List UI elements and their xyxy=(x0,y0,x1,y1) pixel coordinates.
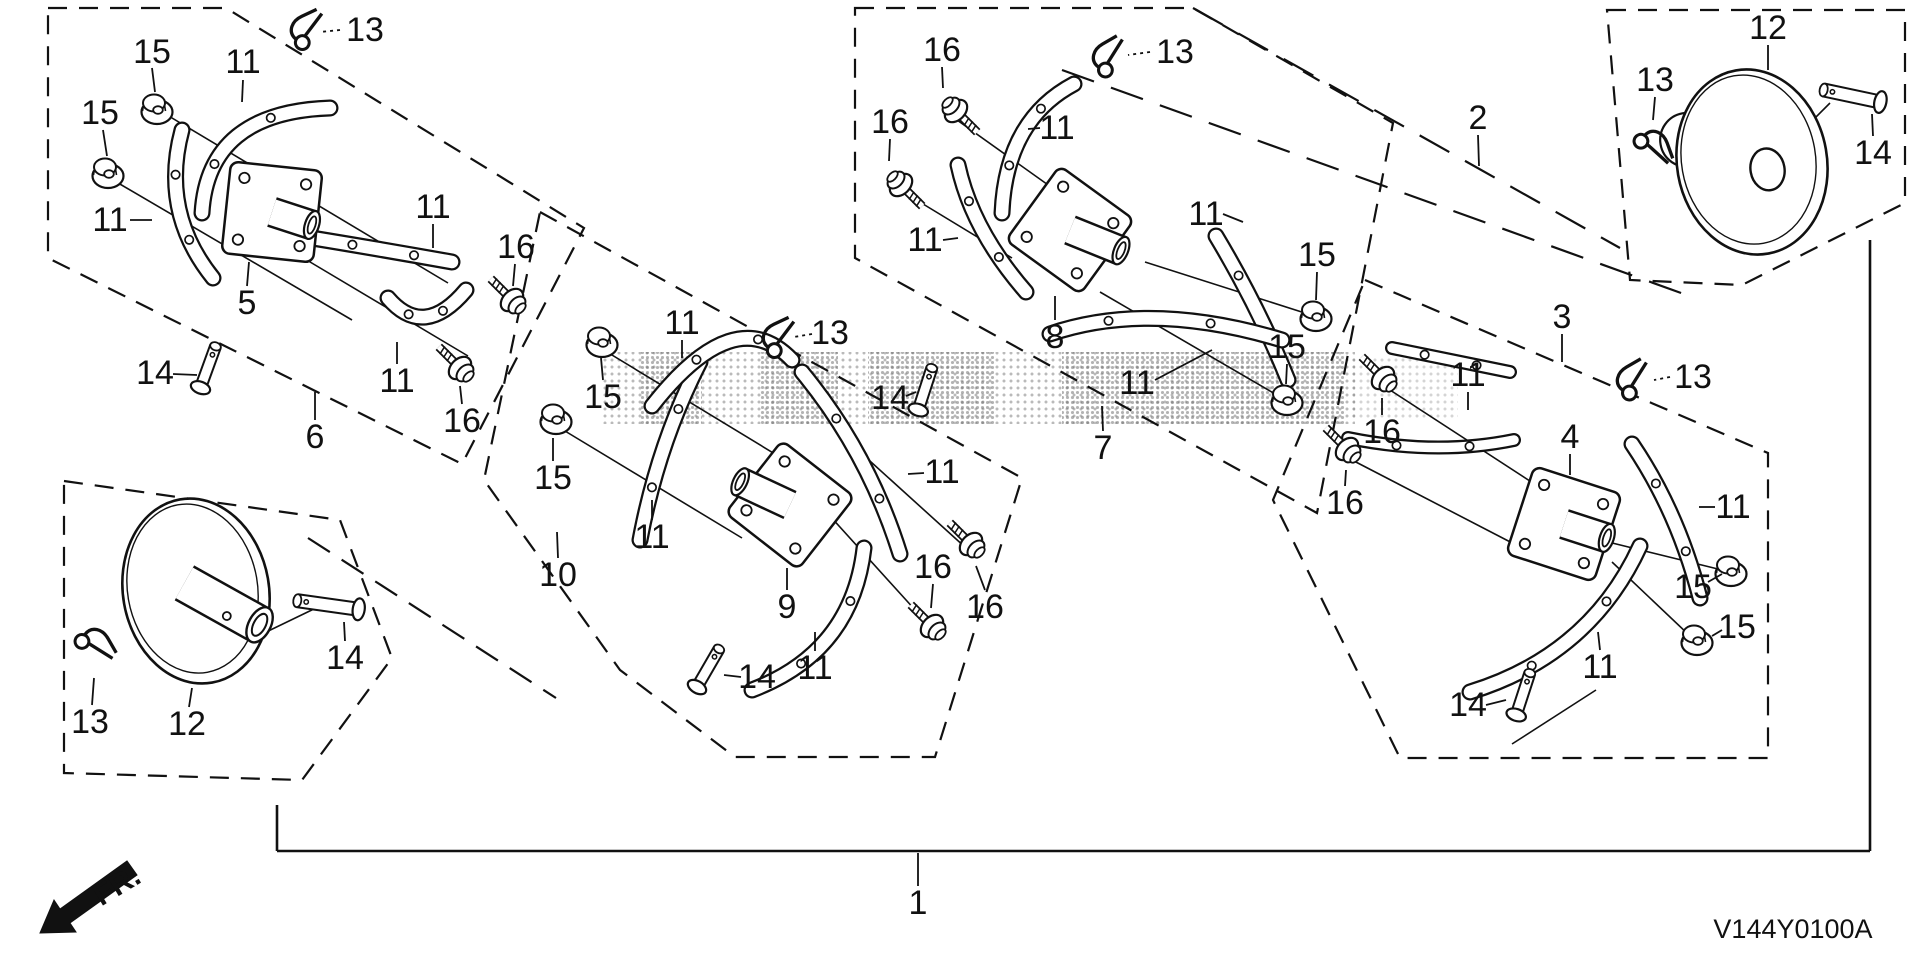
pin-cotter-hole xyxy=(304,599,309,604)
part-label-15: 15 xyxy=(584,378,622,416)
part-label-15: 15 xyxy=(1718,608,1756,646)
nut-hex-side xyxy=(588,338,589,344)
part-label-14: 14 xyxy=(738,658,776,696)
flange-bolt-part-16 xyxy=(482,270,533,321)
rotor-holder-plate-part-8 xyxy=(1006,166,1135,295)
blade-bolt-hole xyxy=(674,405,682,413)
blade-bolt-hole xyxy=(1602,597,1610,605)
part-label-4: 4 xyxy=(1561,418,1580,456)
blade-bolt-hole xyxy=(692,355,700,363)
rotor-pin-part-14 xyxy=(189,339,226,397)
part-label-8: 8 xyxy=(1046,318,1065,356)
leader-line xyxy=(103,130,107,156)
nut-hole xyxy=(552,416,562,424)
part-label-16: 16 xyxy=(914,548,952,586)
leader-line xyxy=(976,566,985,590)
part-label-14: 14 xyxy=(1854,134,1892,172)
blade-bolt-hole xyxy=(1465,442,1473,450)
part-label-11: 11 xyxy=(225,43,260,81)
diagram-page: 1315111511511161461611151511131111911141… xyxy=(0,0,1920,960)
part-label-11: 11 xyxy=(924,453,959,491)
leader-line xyxy=(92,678,94,705)
part-label-14: 14 xyxy=(1449,686,1487,724)
leader-line xyxy=(1654,377,1670,380)
part-label-11: 11 xyxy=(1582,648,1617,686)
tiller-blade-part-11 xyxy=(312,238,452,262)
cotter-pin-part-13 xyxy=(1087,34,1134,79)
part-label-11: 11 xyxy=(1450,356,1485,394)
part-label-14: 14 xyxy=(871,379,909,417)
pin-cotter-hole xyxy=(1830,89,1835,94)
leader-line xyxy=(1223,214,1243,222)
part-label-11: 11 xyxy=(1039,109,1074,147)
parts-diagram-svg: 1315111511511161461611151511131111911141… xyxy=(0,0,1920,960)
part-label-11: 11 xyxy=(1715,488,1750,526)
leader-line xyxy=(1028,128,1040,129)
part-label-11: 11 xyxy=(1119,364,1154,402)
blade-bolt-hole xyxy=(1420,351,1428,359)
blade-bolt-hole xyxy=(1104,317,1112,325)
cotter-ring xyxy=(73,632,92,651)
nut-hole xyxy=(1283,397,1293,405)
leader-line xyxy=(889,139,890,161)
cotter-pin-part-13 xyxy=(286,8,333,52)
blade-bolt-hole xyxy=(1234,271,1242,279)
cotter-ring xyxy=(1620,384,1639,403)
leader-line xyxy=(1128,52,1150,55)
part-label-9: 9 xyxy=(778,588,797,626)
tiller-blade-part-11 xyxy=(1050,317,1282,340)
flange-bolt-part-16 xyxy=(881,165,932,216)
leader-line xyxy=(152,68,155,92)
part-label-13: 13 xyxy=(346,11,384,49)
pin-cotter-hole xyxy=(926,374,932,380)
leader-line xyxy=(247,262,249,286)
blade-bolt-hole xyxy=(404,310,412,318)
nut-hole xyxy=(598,339,608,347)
nut-hex-side xyxy=(610,338,611,344)
part-label-11: 11 xyxy=(634,518,669,556)
blade-bolt-hole xyxy=(348,241,356,249)
blade-body xyxy=(1050,318,1282,340)
blade-bolt-hole xyxy=(1005,161,1013,169)
part-label-14: 14 xyxy=(326,639,364,677)
blade-bolt-hole xyxy=(1652,479,1660,487)
part-label-12: 12 xyxy=(1749,9,1787,47)
nut-hex-side xyxy=(165,105,166,111)
leader-line xyxy=(1653,97,1655,120)
part-label-13: 13 xyxy=(71,703,109,741)
part-label-13: 13 xyxy=(1156,33,1194,71)
blade-bolt-hole xyxy=(210,160,218,168)
nut-hex-side xyxy=(1717,567,1718,573)
part-label-13: 13 xyxy=(1674,358,1712,396)
boundary-dashed-line xyxy=(1193,8,1620,248)
part-label-15: 15 xyxy=(1298,236,1336,274)
leader-line xyxy=(513,264,515,286)
leader-line xyxy=(1872,114,1873,136)
part-label-16: 16 xyxy=(1326,484,1364,522)
blade-bolt-hole xyxy=(1682,547,1690,555)
rotor-pin-part-14 xyxy=(685,640,729,697)
part-label-15: 15 xyxy=(1674,568,1712,606)
part-label-3: 3 xyxy=(1553,298,1572,336)
part-label-1: 1 xyxy=(909,884,928,922)
leader-line xyxy=(557,532,558,558)
flange-nut-part-15 xyxy=(142,95,173,125)
leader-line xyxy=(1286,364,1287,384)
flange-nut-part-15 xyxy=(587,328,618,358)
part-label-7: 7 xyxy=(1094,429,1113,467)
plate-hole xyxy=(294,240,305,251)
nut-hex-side xyxy=(143,105,144,111)
part-label-16: 16 xyxy=(966,588,1004,626)
pin-cotter-hole xyxy=(210,352,216,358)
rotor-pin-part-14 xyxy=(292,589,366,621)
leader-line xyxy=(1486,700,1506,705)
blade-bolt-hole xyxy=(648,483,656,491)
nut-hex-side xyxy=(1295,396,1296,402)
nut-hex-side xyxy=(1683,636,1684,642)
part-label-16: 16 xyxy=(443,402,481,440)
cotter-ring xyxy=(1096,61,1115,80)
flange-nut-part-15 xyxy=(1301,302,1332,332)
part-label-16: 16 xyxy=(871,103,909,141)
blade-bolt-hole xyxy=(267,114,275,122)
assembly-axis-line xyxy=(1352,460,1518,546)
blade-bolt-hole xyxy=(1206,319,1214,327)
leader-line xyxy=(794,334,812,337)
part-label-11: 11 xyxy=(92,201,127,239)
leader-line xyxy=(908,473,924,474)
nut-hole xyxy=(104,170,114,178)
nut-hole xyxy=(1693,637,1703,645)
plate-hole xyxy=(239,172,250,183)
nut-hex-side xyxy=(1302,312,1303,318)
cotter-pin-part-13 xyxy=(1611,357,1658,402)
plate-hole xyxy=(300,179,311,190)
side-disc-part-12 xyxy=(108,486,288,695)
part-label-6: 6 xyxy=(306,418,325,456)
nut-hole xyxy=(1312,313,1322,321)
diagram-code: V144Y0100A xyxy=(1713,914,1872,944)
part-label-11: 11 xyxy=(797,649,832,687)
blade-bolt-hole xyxy=(846,597,854,605)
part-label-16: 16 xyxy=(923,31,961,69)
pin-cotter-hole xyxy=(1524,679,1530,685)
part-label-16: 16 xyxy=(497,228,535,266)
cotter-pin-part-13 xyxy=(73,623,118,670)
side-disc-part-12 xyxy=(1650,57,1842,268)
nut-hole xyxy=(1727,568,1737,576)
nut-hex-side xyxy=(116,169,117,175)
part-label-2: 2 xyxy=(1469,99,1488,137)
nut-hex-side xyxy=(1273,396,1274,402)
blade-bolt-hole xyxy=(410,251,418,259)
rotor-pin-part-14 xyxy=(1817,78,1888,114)
flange-nut-part-15 xyxy=(93,159,124,189)
leader-line xyxy=(242,80,243,102)
nut-hex-side xyxy=(1705,636,1706,642)
part-label-11: 11 xyxy=(415,188,450,226)
cotter-ring xyxy=(293,33,311,51)
part-label-11: 11 xyxy=(907,221,942,259)
rotor-holder-plate-part-9 xyxy=(725,440,854,569)
leader-line xyxy=(943,238,958,240)
flange-nut-part-15 xyxy=(541,405,572,435)
watermark-band xyxy=(600,352,1458,424)
blade-bolt-hole xyxy=(832,414,840,422)
nut-hex-side xyxy=(1324,312,1325,318)
nut-hex-side xyxy=(1739,567,1740,573)
part-label-13: 13 xyxy=(1636,61,1674,99)
blade-bolt-hole xyxy=(995,253,1003,261)
nut-hex-side xyxy=(94,169,95,175)
part-label-5: 5 xyxy=(238,284,257,322)
part-label-12: 12 xyxy=(168,705,206,743)
nut-hole xyxy=(153,106,163,114)
blade-bolt-hole xyxy=(439,307,447,315)
nut-hex-side xyxy=(542,415,543,421)
part-label-14: 14 xyxy=(136,354,174,392)
blade-bolt-hole xyxy=(875,494,883,502)
part-label-16: 16 xyxy=(1363,413,1401,451)
part-label-15: 15 xyxy=(1268,328,1306,366)
blade-bolt-hole xyxy=(754,335,762,343)
leader-line xyxy=(1316,272,1317,300)
disc-pin-hole xyxy=(222,611,231,620)
flange-bolt-part-16 xyxy=(936,91,987,142)
leader-line xyxy=(1102,406,1103,431)
nut-hex-side xyxy=(564,415,565,421)
part-label-10: 10 xyxy=(539,556,577,594)
rotor-holder-plate-part-4 xyxy=(1506,466,1622,582)
flange-nut-part-15 xyxy=(1716,557,1747,587)
leader-line xyxy=(1478,135,1479,166)
leader-line xyxy=(320,30,340,32)
part-label-15: 15 xyxy=(81,94,119,132)
leader-line xyxy=(931,584,933,608)
flange-bolt-part-16 xyxy=(430,338,481,389)
assembly-axis-line xyxy=(1600,540,1722,570)
rotor-holder-plate-part-5 xyxy=(221,161,323,262)
blade-bolt-hole xyxy=(965,197,973,205)
leader-line xyxy=(173,374,197,375)
part-label-11: 11 xyxy=(379,362,414,400)
leader-line xyxy=(942,67,943,88)
part-label-13: 13 xyxy=(811,314,849,352)
part-label-15: 15 xyxy=(534,459,572,497)
blade-bolt-hole xyxy=(185,236,193,244)
boundary-dashed-line xyxy=(1062,70,1695,298)
tiller-blade-part-11 xyxy=(388,290,466,319)
blade-bolt-hole xyxy=(171,170,179,178)
part-label-11: 11 xyxy=(1188,195,1223,233)
part-label-15: 15 xyxy=(133,33,171,71)
part-label-11: 11 xyxy=(664,304,699,342)
plate-hole xyxy=(232,234,243,245)
flange-nut-part-15 xyxy=(1682,626,1713,656)
